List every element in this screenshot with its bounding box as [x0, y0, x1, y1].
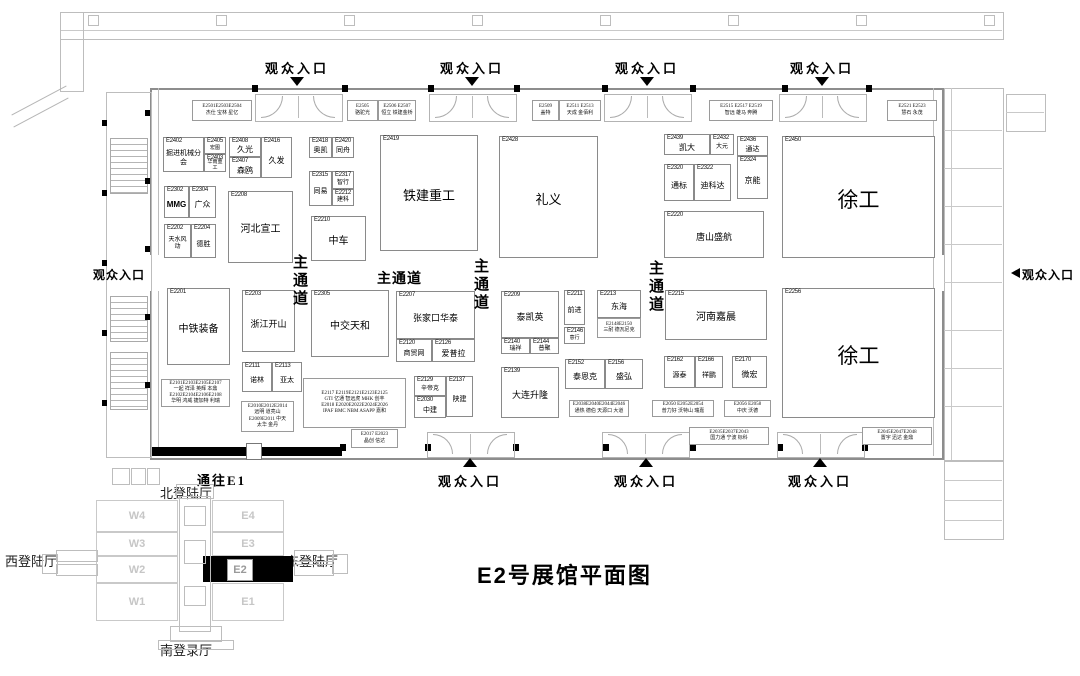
booth-name: 亚太 — [274, 369, 300, 391]
strip-line: 三耐 德瓦尼克 — [598, 328, 640, 334]
booth-E2162: E2162源泰 — [664, 356, 695, 388]
booth-E2320: E2320通标 — [664, 164, 694, 201]
strip-line: 晶创 信达 — [352, 439, 397, 445]
booth-E2304: E2304广众 — [189, 186, 216, 218]
booth-E2450: E2450徐工 — [782, 136, 935, 258]
entrance-arrow-top-1 — [290, 77, 304, 86]
minimap-east-arm — [294, 564, 334, 576]
booth-name: 同舟 — [334, 144, 352, 157]
entrance-label-bottom-2: 观众入口 — [614, 471, 678, 490]
booth-name: 久发 — [263, 144, 290, 177]
entrance-arrow-top-3 — [640, 77, 654, 86]
door-mullion — [472, 96, 473, 118]
booth-name: 河南嘉晨 — [667, 297, 765, 339]
minimap-hall-E1: E1 — [212, 583, 284, 621]
booth-E2317: E2317智行 — [332, 171, 354, 189]
booth-E2120: E2120商贸网 — [396, 339, 432, 362]
main-aisle-label-2: 主通道 — [377, 268, 422, 288]
booth-strip-E2035E2037E2043: E2035E2037E2043国力通 宁波 标科 — [689, 427, 769, 445]
booth-name: 礼义 — [501, 143, 596, 257]
booth-name: 通达 — [739, 143, 766, 155]
booth-E2152: E2152泰恩克 — [565, 359, 605, 389]
booth-E2204: E2204德胜 — [191, 224, 216, 258]
booth-E2111: E2111诺林 — [242, 362, 272, 392]
booth-name: 唐山盛航 — [666, 218, 762, 257]
booth-name: 微宏 — [734, 363, 765, 387]
booth-name: 迪科达 — [696, 171, 729, 200]
booth-strip-E2038E2040E2044E2046: E2038E2040E2044E2046通热 德伯 天源口 大道 — [569, 400, 629, 417]
wall-column — [252, 85, 258, 92]
booth-name: 智行 — [334, 178, 352, 188]
annex-room-line — [944, 244, 1002, 245]
booth-E2419: E2419铁建重工 — [380, 135, 478, 251]
main-aisle-label-3: 主通道 — [470, 258, 491, 312]
booth-name: 森鸥 — [231, 164, 259, 177]
entrance-arrow-bottom-1 — [463, 458, 477, 467]
wall-column — [690, 444, 696, 451]
canopy-column — [88, 15, 99, 26]
entrance-label-top-1: 观众入口 — [265, 58, 329, 77]
minimap-hall-W3: W3 — [96, 532, 178, 556]
booth-name: 浙江开山 — [244, 297, 293, 351]
booth-name: 徐工 — [784, 143, 933, 257]
booth-name: 辛帝克 — [416, 383, 444, 395]
booth-strip-E2017-E2023: E2017 E2023晶创 信达 — [351, 429, 398, 448]
ramp-line — [13, 98, 68, 128]
booth-E2212: E2212建科 — [332, 189, 354, 206]
entrance-label-bottom-3: 观众入口 — [788, 471, 852, 490]
annex-room-line — [944, 206, 1002, 207]
wall-column — [102, 330, 107, 336]
strip-line: 太华 金丹 — [242, 423, 293, 429]
entrance-label-bottom-1: 观众入口 — [438, 471, 502, 490]
booth-name: 泰恩克 — [567, 366, 603, 388]
booth-name: 源泰 — [666, 363, 693, 387]
booth-E2137: E2137陕建 — [446, 376, 473, 417]
annex-room-line — [944, 368, 1002, 369]
booth-name: 德胜 — [193, 231, 214, 257]
wall-column — [428, 85, 434, 92]
booth-name: 商贸网 — [398, 346, 430, 361]
booth-name: 建科 — [334, 196, 352, 205]
strip-line: 华明 鸿威 捷加特 利瑞 — [162, 399, 229, 405]
wall-column — [602, 85, 608, 92]
annex-room-line — [944, 168, 1002, 169]
annex-line — [951, 88, 952, 460]
wall-column — [690, 85, 696, 92]
strip-line: 恒立 铁建金桥 — [379, 111, 415, 117]
annex-room-line — [944, 480, 1002, 481]
strip-line: 天成 金佰利 — [560, 111, 600, 117]
booth-E2315: E2315同易 — [309, 171, 332, 206]
booth-strip-E2148E2150: E2148E2150三耐 德瓦尼克 — [597, 318, 641, 338]
booth-name: 京能 — [739, 163, 766, 198]
booth-name: 大连升隆 — [503, 374, 557, 417]
booth-strip-E2056-E2058: E2056 E2058中庆 沃德 — [724, 400, 771, 417]
minimap-hall-E2-label: E2 — [227, 559, 253, 581]
wall-column — [145, 110, 150, 116]
booth-E2324: E2324京能 — [737, 156, 768, 199]
booth-E2202: E2202天水风动 — [164, 224, 191, 258]
booth-name: 河北宣工 — [230, 198, 291, 262]
strip-line: 慧石 永茂 — [888, 111, 936, 117]
booth-E2416: E2416久发 — [261, 137, 292, 178]
booth-strip-E2101E2103E2105E2107: E2101E2103E2105E2107一起 祥泽 英辉 本鼎E2102E210… — [161, 379, 230, 407]
ramp-line — [11, 86, 66, 116]
minimap-spine-room — [184, 506, 206, 526]
minimap-north-stub — [176, 484, 214, 499]
booth-E2144: E2144普聚 — [530, 338, 559, 354]
strip-line: 中庆 沃德 — [725, 409, 770, 415]
main-aisle-label-1: 主通道 — [289, 254, 310, 308]
minimap-east-arm — [294, 550, 334, 562]
minimap-hall-W1: W1 — [96, 583, 178, 621]
annex-room-line — [944, 330, 1002, 331]
strip-line: 杰仕 宝林 星亿 — [193, 111, 251, 117]
booth-E2302: E2302MMG — [164, 186, 189, 218]
door-mullion — [820, 434, 821, 454]
annex-room-line — [944, 500, 1002, 501]
booth-name: 大元 — [712, 141, 732, 154]
booth-E2407: E2407森鸥 — [229, 157, 261, 178]
booth-E2201: E2201中铁装备 — [167, 288, 230, 365]
booth-name: 华南重工 — [206, 161, 224, 171]
minimap-spine-room — [184, 586, 206, 606]
booth-name: 通标 — [666, 171, 692, 200]
annex-room-line — [944, 406, 1002, 407]
booth-E2170: E2170微宏 — [732, 356, 767, 388]
booth-strip-E2050-E2052E2054: E2050 E2052E2054普力好 沃特山 瑞嘉 — [652, 400, 714, 417]
booth-E2126: E2126爱普拉 — [432, 339, 475, 362]
door-mullion — [645, 434, 646, 454]
canopy-west-leg — [60, 12, 84, 92]
booth-E2420: E2420同舟 — [332, 137, 354, 158]
booth-E2405: E2405宏图 — [204, 137, 226, 154]
strip-line: 智远 雄马 奔腾 — [710, 111, 772, 117]
booth-E2166: E2166祥鹏 — [695, 356, 723, 388]
west-stairs — [110, 138, 148, 194]
booth-E2403: E2403华南重工 — [204, 154, 226, 172]
booth-E2436: E2436通达 — [737, 136, 768, 156]
booth-E2207: E2207张家口华泰 — [396, 291, 475, 339]
strip-line: 盖特 — [533, 111, 558, 117]
booth-E2208: E2208河北宣工 — [228, 191, 293, 263]
entrance-label-top-2: 观众入口 — [440, 58, 504, 77]
booth-name: 同易 — [311, 178, 330, 205]
booth-E2140: E2140瑞祥 — [501, 338, 530, 354]
minimap-top-room — [147, 468, 160, 485]
booth-E2203: E2203浙江开山 — [242, 290, 295, 352]
minimap-hall-E3: E3 — [212, 532, 284, 556]
entrance-arrow-bottom-3 — [813, 458, 827, 467]
entrance-arrow-right — [1011, 268, 1020, 278]
booth-E2220: E2220唐山盛航 — [664, 211, 764, 258]
booth-E2322: E2322迪科达 — [694, 164, 731, 201]
wall-column — [102, 190, 107, 196]
booth-E2213: E2213东海 — [597, 290, 641, 318]
entrance-arrow-top-4 — [815, 77, 829, 86]
booth-name: 中建 — [416, 403, 444, 417]
booth-E2139: E2139大连升隆 — [501, 367, 559, 418]
booth-name: 陕建 — [448, 383, 471, 416]
minimap-east-landing — [332, 554, 348, 574]
door-mullion — [470, 434, 471, 454]
door-mullion — [647, 96, 648, 118]
canopy-column — [216, 15, 227, 26]
booth-E2256: E2256徐工 — [782, 288, 935, 418]
entrance-label-top-3: 观众入口 — [615, 58, 679, 77]
northeast-room-line — [1006, 112, 1044, 113]
booth-E2408: E2408久光 — [229, 137, 261, 157]
minimap-west-landing — [42, 554, 58, 574]
northeast-rooms — [1006, 94, 1046, 132]
booth-E2428: E2428礼义 — [499, 136, 598, 258]
door-mullion — [298, 96, 299, 118]
strip-line: IPAF BMC NBM ASAPP 嘉和 — [304, 409, 405, 415]
wall-column — [514, 85, 520, 92]
minimap-top-room — [131, 468, 146, 485]
booth-E2156: E2156盛弘 — [605, 359, 643, 389]
canopy-column — [856, 15, 867, 26]
minimap-west-arm — [56, 564, 98, 576]
booth-name: 中车 — [313, 223, 364, 260]
entrance-label-left: 观众入口 — [93, 266, 145, 283]
booth-name: 爱普拉 — [434, 346, 473, 361]
booth-name: 凯大 — [666, 141, 708, 154]
booth-name: 泰凯英 — [503, 298, 557, 337]
booth-name: 天水风动 — [166, 231, 189, 257]
booth-E2113: E2113亚太 — [272, 362, 302, 392]
strip-line: 国力通 宁波 标科 — [690, 436, 768, 442]
booth-strip-E2501E2503E2504: E2501E2503E2504杰仕 宝林 星亿 — [192, 100, 252, 121]
booth-E2418: E2418奥凯 — [309, 137, 332, 158]
booth-E2439: E2439凯大 — [664, 134, 710, 155]
canopy-column — [600, 15, 611, 26]
wall-column — [102, 400, 107, 406]
booth-strip-E2117-E2119E2121E2123E2125: E2117 E2119E2121E2123E2125GTI 亿通 智远虎 MHK… — [303, 378, 406, 428]
booth-E2215: E2215河南嘉晨 — [665, 290, 767, 340]
entrance-label-right: 观众入口 — [1022, 266, 1074, 283]
booth-name: 中铁装备 — [169, 295, 228, 364]
west-stairs — [110, 296, 148, 342]
booth-E2129: E2129辛帝克 — [414, 376, 446, 396]
booth-E2305: E2305中交天和 — [311, 290, 389, 357]
booth-E2146: E2146意行 — [564, 327, 585, 344]
booth-name: 久光 — [231, 144, 259, 156]
minimap-hall-W4: W4 — [96, 500, 178, 532]
wall-column — [145, 382, 150, 388]
wall-column — [102, 120, 107, 126]
annex-room-line — [944, 520, 1002, 521]
booth-name: 盛弘 — [607, 366, 641, 388]
wall-column — [866, 85, 872, 92]
booth-E2402: E2402掘进机械分会 — [163, 137, 204, 172]
wall-column — [145, 246, 150, 252]
booth-name: 祥鹏 — [697, 363, 721, 387]
west-stairs — [110, 352, 148, 410]
floor-plan-title: E2号展馆平面图 — [477, 558, 652, 590]
minimap-spine-room — [184, 540, 206, 564]
entrance-label-top-4: 观众入口 — [790, 58, 854, 77]
booth-E2210: E2210中车 — [311, 216, 366, 261]
booth-E2432: E2432大元 — [710, 134, 734, 155]
booth-name: 徐工 — [784, 295, 933, 417]
wall-column — [782, 85, 788, 92]
canopy-column — [728, 15, 739, 26]
booth-E2030: E2030中建 — [414, 396, 446, 418]
booth-name: 奥凯 — [311, 144, 330, 157]
booth-name: 普聚 — [532, 345, 557, 353]
booth-strip-E2521-E2523: E2521 E2523慧石 永茂 — [887, 100, 937, 121]
minimap-hall-E4: E4 — [212, 500, 284, 532]
annex-room-line — [944, 282, 1002, 283]
minimap-south-landing — [158, 640, 234, 650]
annex-room-line — [944, 130, 1002, 131]
door-mullion — [822, 96, 823, 118]
minimap-top-room — [112, 468, 130, 485]
booth-name: 瑞祥 — [503, 345, 528, 353]
booth-name: 掘进机械分会 — [165, 144, 202, 171]
entrance-arrow-top-2 — [465, 77, 479, 86]
entrance-arrow-bottom-2 — [639, 458, 653, 467]
minimap-hall-W2: W2 — [96, 556, 178, 583]
canopy-column — [344, 15, 355, 26]
canopy-column — [984, 15, 995, 26]
booth-name: 东海 — [599, 297, 639, 317]
booth-strip-E2010E2012E2014: E2010E2012E2014远明 道亮山E2009E2011 中天太华 金丹 — [241, 401, 294, 432]
booth-strip-E2506-E2507: E2506 E2507恒立 铁建金桥 — [378, 100, 416, 121]
canopy-column — [472, 15, 483, 26]
to-e1-door-notch — [246, 443, 262, 460]
booth-strip-E2045E2047E2048: E2045E2047E2048置宇 迅达 金鼎 — [862, 427, 932, 445]
booth-name: MMG — [166, 193, 187, 217]
strip-line: 通热 德伯 天源口 大道 — [570, 409, 628, 415]
booth-name: 铁建重工 — [382, 142, 476, 250]
booth-name: 广众 — [191, 193, 214, 217]
booth-name: 中交天和 — [313, 297, 387, 356]
booth-name: 意行 — [566, 334, 583, 343]
booth-strip-E2509: E2509盖特 — [532, 100, 559, 121]
booth-name: 诺林 — [244, 369, 270, 391]
exhibition-floor-plan: E2402掘进机械分会E2405宏图E2403华南重工E2408久光E2407森… — [0, 0, 1080, 676]
booth-name: 张家口华泰 — [398, 298, 473, 338]
booth-strip-E2511-E2513: E2511 E2513天成 金佰利 — [559, 100, 601, 121]
booth-E2211: E2211前进 — [564, 290, 585, 325]
booth-E2209: E2209泰凯英 — [501, 291, 559, 338]
main-aisle-label-4: 主通道 — [645, 260, 666, 314]
canopy-line — [60, 30, 1002, 31]
wall-column — [342, 85, 348, 92]
booth-strip-E2515-E2517-E2519: E2515 E2517 E2519智远 雄马 奔腾 — [709, 100, 773, 121]
strip-line: 置宇 迅达 金鼎 — [863, 436, 931, 442]
booth-name: 宏图 — [206, 144, 224, 153]
booth-strip-E2505: E2505骆驼光 — [347, 100, 378, 121]
wall-column — [145, 314, 150, 320]
strip-line: 骆驼光 — [348, 111, 377, 117]
minimap-west-arm — [56, 550, 98, 562]
strip-line: 普力好 沃特山 瑞嘉 — [653, 409, 713, 415]
wall-column — [145, 178, 150, 184]
booth-name: 前进 — [566, 297, 583, 324]
